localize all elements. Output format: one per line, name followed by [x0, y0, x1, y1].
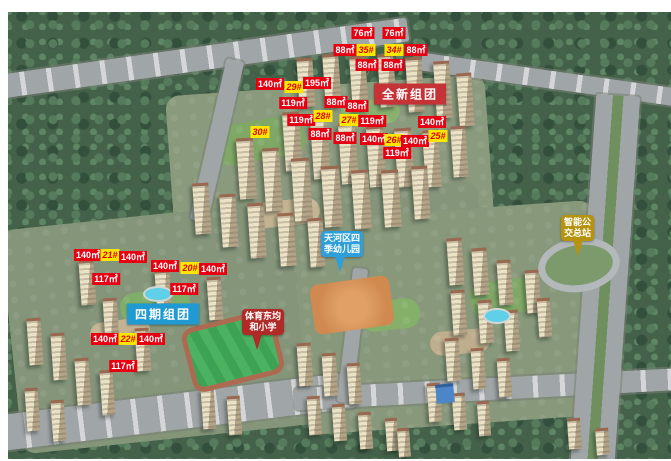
unit-size-label: 140㎡ — [418, 116, 446, 128]
unit-size-label: 117㎡ — [170, 283, 198, 295]
unit-size-label: 76㎡ — [351, 27, 374, 39]
kindergarten-label-line: 天河区四 — [324, 233, 360, 244]
building-number-label: 22# — [118, 333, 137, 345]
primary-school-pointer — [252, 334, 262, 350]
building-number-label: 30# — [250, 126, 269, 138]
unit-size-label: 140㎡ — [119, 251, 147, 263]
unit-size-label: 119㎡ — [287, 114, 315, 126]
building-number-label: 21# — [100, 249, 119, 261]
building-number-label: 20# — [180, 262, 199, 274]
unit-size-label: 88㎡ — [333, 44, 356, 56]
unit-size-label: 88㎡ — [324, 96, 347, 108]
real-estate-aerial-map: 76㎡76㎡88㎡35#34#88㎡88㎡88㎡140㎡29#195㎡119㎡8… — [0, 0, 671, 461]
building-number-label: 29# — [284, 81, 303, 93]
unit-size-label: 119㎡ — [358, 115, 386, 127]
bus-terminal-bubble: 智能公交总站 — [561, 215, 594, 241]
building-number-label: 35# — [356, 44, 375, 56]
unit-size-label: 119㎡ — [279, 97, 307, 109]
phase4-group-banner: 四期组团 — [127, 304, 199, 325]
unit-size-label: 140㎡ — [137, 333, 165, 345]
kindergarten-label-line: 季幼儿园 — [324, 244, 360, 255]
building-number-label: 28# — [313, 110, 332, 122]
unit-size-label: 117㎡ — [109, 360, 137, 372]
aerial-photo-scene: 76㎡76㎡88㎡35#34#88㎡88㎡88㎡140㎡29#195㎡119㎡8… — [0, 0, 671, 461]
building-number-label: 27# — [339, 114, 358, 126]
primary-school-bubble: 体育东均和小学 — [242, 309, 284, 335]
bus-terminal-pointer — [573, 240, 583, 256]
primary-school-label-line: 体育东均 — [245, 311, 281, 322]
unit-size-label: 140㎡ — [151, 260, 179, 272]
unit-size-label: 140㎡ — [199, 263, 227, 275]
unit-size-label: 140㎡ — [74, 249, 102, 261]
unit-size-label: 88㎡ — [355, 59, 378, 71]
unit-size-label: 88㎡ — [381, 59, 404, 71]
kindergarten-bubble: 天河区四季幼儿园 — [321, 231, 363, 257]
unit-size-label: 117㎡ — [92, 273, 120, 285]
bus-terminal-label-line: 智能公 — [564, 217, 591, 228]
unit-size-label: 140㎡ — [401, 135, 429, 147]
unit-size-label: 140㎡ — [256, 78, 284, 90]
unit-size-label: 88㎡ — [333, 132, 356, 144]
bus-terminal-label-line: 交总站 — [564, 228, 591, 239]
kindergarten-pointer — [335, 256, 345, 272]
unit-size-label: 140㎡ — [91, 333, 119, 345]
unit-size-label: 88㎡ — [404, 44, 427, 56]
unit-size-label: 88㎡ — [308, 128, 331, 140]
unit-size-label: 76㎡ — [382, 27, 405, 39]
unit-size-label: 88㎡ — [345, 100, 368, 112]
unit-size-label: 195㎡ — [303, 77, 331, 89]
new-group-banner: 全新组团 — [374, 84, 446, 105]
building-number-label: 25# — [428, 130, 447, 142]
labels-layer: 76㎡76㎡88㎡35#34#88㎡88㎡88㎡140㎡29#195㎡119㎡8… — [0, 0, 671, 461]
unit-size-label: 119㎡ — [383, 147, 411, 159]
primary-school-label-line: 和小学 — [245, 322, 281, 333]
building-number-label: 34# — [384, 44, 403, 56]
